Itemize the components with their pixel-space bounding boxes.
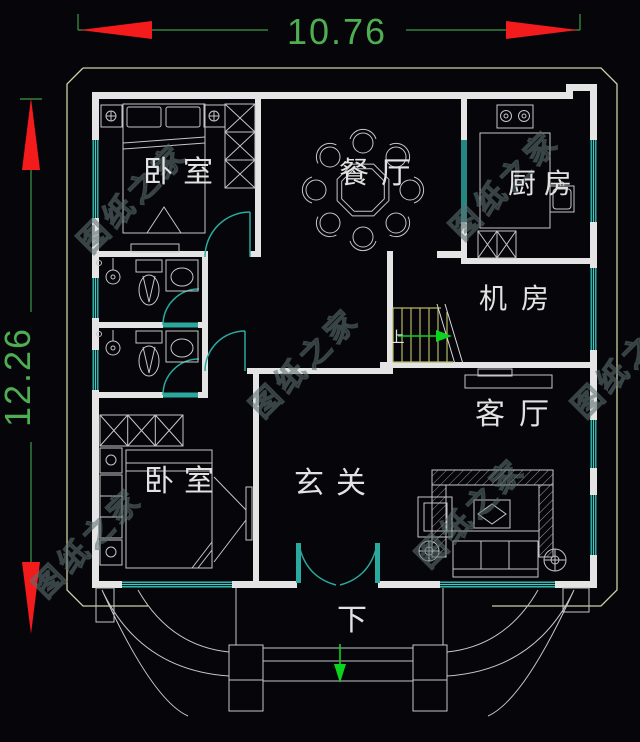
floor-plan-page: 10.76 12.26 图纸之家 图纸之家 图纸之家 图纸之家 图纸之家 图纸之…: [0, 0, 640, 742]
room-label-living-room: 客厅: [475, 398, 563, 431]
room-label-kitchen: 厨房: [508, 168, 580, 199]
room-label-dining: 餐厅: [339, 157, 423, 190]
room-label-entry-hall: 玄关: [294, 467, 378, 500]
dimension-width-label: 10.76: [287, 11, 387, 52]
room-label-machine-room: 机房: [479, 283, 563, 314]
room-label-bedroom-top: 卧室: [143, 156, 223, 189]
entry-direction-label: 下: [337, 604, 367, 637]
room-label-bedroom-bottom: 卧室: [144, 465, 224, 498]
floor-plan-canvas: 10.76 12.26 图纸之家 图纸之家 图纸之家 图纸之家 图纸之家 图纸之…: [0, 0, 640, 742]
dimension-height-label: 12.26: [0, 327, 38, 427]
stair-direction-label: 上: [389, 329, 404, 346]
